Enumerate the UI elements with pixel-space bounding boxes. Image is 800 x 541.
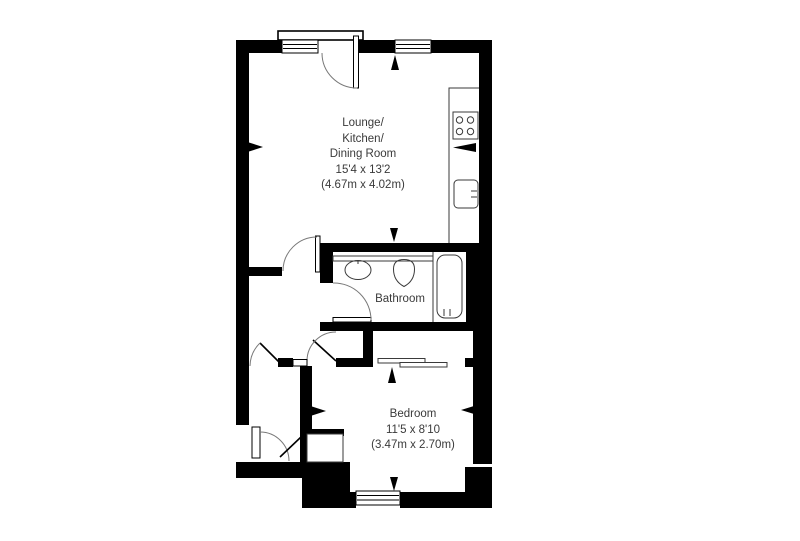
window-lounge-right <box>395 40 431 53</box>
bedroom-door <box>293 332 336 366</box>
kitchen-fixtures <box>449 88 479 243</box>
kitchen-counter <box>449 88 479 243</box>
bathroom-fixtures <box>333 252 462 322</box>
bathroom-label: Bathroom <box>360 292 440 308</box>
lounge-name-line: Lounge/ <box>287 116 439 132</box>
bathtub-icon <box>433 252 462 322</box>
wardrobe-sliding-doors-icon <box>378 359 447 368</box>
marker-lounge-right <box>453 143 476 152</box>
lounge-size-imperial: 15'4 x 13'2 <box>287 163 439 179</box>
lounge-size-metric: (4.67m x 4.02m) <box>287 178 439 194</box>
lounge-label: Lounge/ Kitchen/ Dining Room 15'4 x 13'2… <box>287 116 439 194</box>
marker-lounge-top <box>391 55 399 70</box>
flat-entrance-door <box>252 427 289 461</box>
entry-canopy-sill <box>278 31 363 40</box>
marker-bedroom-top <box>388 367 396 383</box>
bathroom-name: Bathroom <box>360 292 440 308</box>
bedroom-label: Bedroom 11'5 x 8'10 (3.47m x 2.70m) <box>337 407 489 454</box>
kitchen-sink-icon <box>454 180 478 208</box>
toilet-icon <box>394 260 415 287</box>
bedroom-name: Bedroom <box>337 407 489 423</box>
window-lounge-left <box>282 40 318 53</box>
lounge-entry-door <box>322 36 359 88</box>
marker-bedroom-left <box>312 407 326 416</box>
lounge-hall-door <box>283 236 320 272</box>
marker-bedroom-bottom <box>390 477 398 491</box>
bedroom-size-imperial: 11'5 x 8'10 <box>337 423 489 439</box>
floor-plan: Lounge/ Kitchen/ Dining Room 15'4 x 13'2… <box>0 0 800 541</box>
marker-lounge-bottom <box>390 228 398 242</box>
bedroom-size-metric: (3.47m x 2.70m) <box>337 438 489 454</box>
cupboard-door <box>280 437 301 457</box>
lounge-name-line: Kitchen/ <box>287 132 439 148</box>
window-bedroom <box>356 491 400 505</box>
marker-lounge-left <box>249 143 263 152</box>
hob-icon <box>453 112 478 139</box>
bathroom-shelf <box>333 256 433 261</box>
bedroom-door-jamb <box>293 360 307 367</box>
lounge-name-line: Dining Room <box>287 147 439 163</box>
wash-basin-icon <box>345 261 371 280</box>
floor-plan-drawing <box>0 0 800 541</box>
